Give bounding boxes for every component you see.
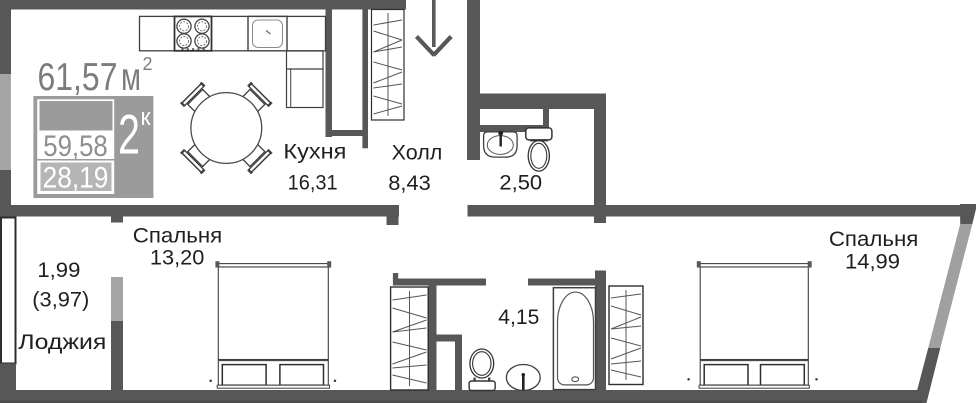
svg-text:2: 2 [143,54,153,74]
svg-text:Спальня: Спальня [829,227,919,251]
svg-text:Кухня: Кухня [283,140,346,164]
svg-text:1,99: 1,99 [37,258,80,282]
svg-text:8,43: 8,43 [388,171,431,195]
svg-text:к: к [141,104,151,131]
svg-text:м: м [121,56,141,99]
svg-text:16,31: 16,31 [288,171,338,195]
svg-text:Лоджия: Лоджия [18,330,106,354]
svg-text:61,57: 61,57 [38,56,118,99]
svg-text:28,19: 28,19 [43,162,109,195]
svg-text:13,20: 13,20 [150,246,205,270]
svg-text:(3,97): (3,97) [32,287,89,311]
svg-text:2: 2 [118,102,140,165]
svg-text:14,99: 14,99 [845,249,900,273]
svg-text:2,50: 2,50 [499,170,542,194]
svg-text:Холл: Холл [392,141,443,165]
svg-text:4,15: 4,15 [498,305,539,329]
svg-text:Спальня: Спальня [133,224,223,248]
svg-text:59,58: 59,58 [43,130,108,163]
